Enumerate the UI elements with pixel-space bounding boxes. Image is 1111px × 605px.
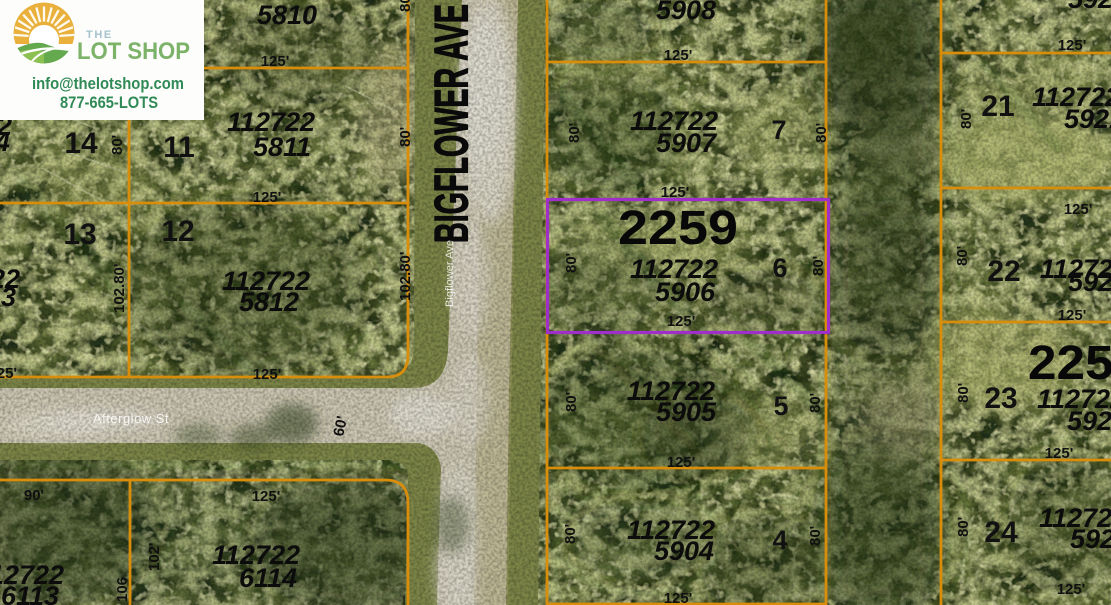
svg-text:80': 80' [955, 383, 972, 403]
svg-text:BIGFLOWER AVE: BIGFLOWER AVE [425, 4, 478, 243]
svg-text:80': 80' [807, 526, 824, 546]
svg-text:80': 80' [810, 256, 827, 276]
svg-text:80': 80' [397, 127, 414, 147]
svg-text:877-665-LOTS: 877-665-LOTS [60, 94, 158, 112]
svg-text:80': 80' [954, 246, 971, 266]
svg-text:5921: 5921 [1068, 0, 1111, 14]
svg-text:info@thelotshop.com: info@thelotshop.com [32, 74, 184, 93]
svg-text:5922: 5922 [1068, 267, 1111, 297]
svg-text:5812: 5812 [239, 287, 299, 317]
svg-text:125': 125' [1045, 445, 1074, 462]
svg-text:Bigflower Ave: Bigflower Ave [444, 240, 456, 307]
svg-text:5905: 5905 [656, 397, 717, 427]
svg-text:21: 21 [981, 90, 1014, 123]
svg-text:22: 22 [987, 255, 1020, 288]
svg-text:25': 25' [0, 365, 17, 382]
svg-text:5908: 5908 [656, 0, 716, 25]
svg-text:6113: 6113 [1, 581, 59, 605]
svg-text:80': 80' [955, 517, 972, 537]
svg-text:14: 14 [64, 127, 98, 160]
svg-text:125': 125' [253, 189, 282, 206]
svg-text:80': 80' [563, 253, 580, 273]
svg-text:Afterglow St: Afterglow St [93, 411, 169, 426]
svg-text:102.80': 102.80' [111, 264, 128, 313]
svg-text:125': 125' [667, 454, 696, 471]
svg-text:5906: 5906 [655, 277, 716, 307]
svg-text:80': 80' [958, 109, 975, 129]
svg-text:24: 24 [984, 516, 1018, 549]
svg-text:125': 125' [664, 47, 693, 64]
svg-text:5810: 5810 [257, 0, 317, 30]
svg-text:12: 12 [161, 215, 194, 248]
svg-text:80': 80' [563, 392, 580, 412]
svg-text:5923: 5923 [1067, 406, 1111, 436]
svg-text:6: 6 [772, 253, 787, 283]
svg-text:125': 125' [252, 488, 281, 505]
svg-text:5: 5 [773, 391, 788, 421]
svg-text:5904: 5904 [654, 536, 714, 566]
svg-text:80': 80' [813, 123, 830, 143]
svg-text:13: 13 [63, 218, 96, 251]
svg-text:4: 4 [772, 525, 787, 555]
svg-text:11: 11 [163, 131, 195, 164]
svg-text:80': 80' [562, 524, 579, 544]
svg-text:80': 80' [109, 135, 126, 155]
svg-text:80': 80' [807, 393, 824, 413]
svg-text:5921: 5921 [1064, 104, 1111, 134]
svg-text:125': 125' [1058, 307, 1087, 324]
svg-text:102.80': 102.80' [397, 252, 414, 301]
svg-text:125': 125' [253, 366, 282, 383]
svg-text:90': 90' [24, 487, 44, 504]
svg-text:125': 125' [1058, 37, 1087, 54]
svg-text:125': 125' [1057, 581, 1086, 598]
svg-text:7: 7 [771, 115, 786, 145]
svg-text:LOT SHOP: LOT SHOP [77, 38, 190, 65]
svg-text:125': 125' [261, 53, 290, 70]
svg-text:5907: 5907 [656, 128, 718, 158]
svg-text:102': 102' [146, 542, 163, 571]
svg-text:2259: 2259 [1028, 337, 1111, 390]
svg-text:106: 106 [114, 577, 131, 602]
svg-text:2259: 2259 [618, 202, 738, 255]
svg-text:5813: 5813 [0, 282, 16, 312]
svg-text:125': 125' [1064, 201, 1093, 218]
svg-text:125': 125' [661, 184, 690, 201]
svg-text:5811: 5811 [253, 132, 311, 162]
svg-text:125': 125' [667, 313, 696, 330]
svg-text:5924: 5924 [1070, 524, 1111, 554]
svg-text:125': 125' [664, 590, 693, 605]
svg-text:80': 80' [566, 123, 583, 143]
svg-text:23: 23 [984, 382, 1017, 415]
svg-text:4: 4 [0, 127, 10, 157]
svg-text:80': 80' [397, 0, 414, 12]
svg-text:6114: 6114 [239, 563, 297, 593]
